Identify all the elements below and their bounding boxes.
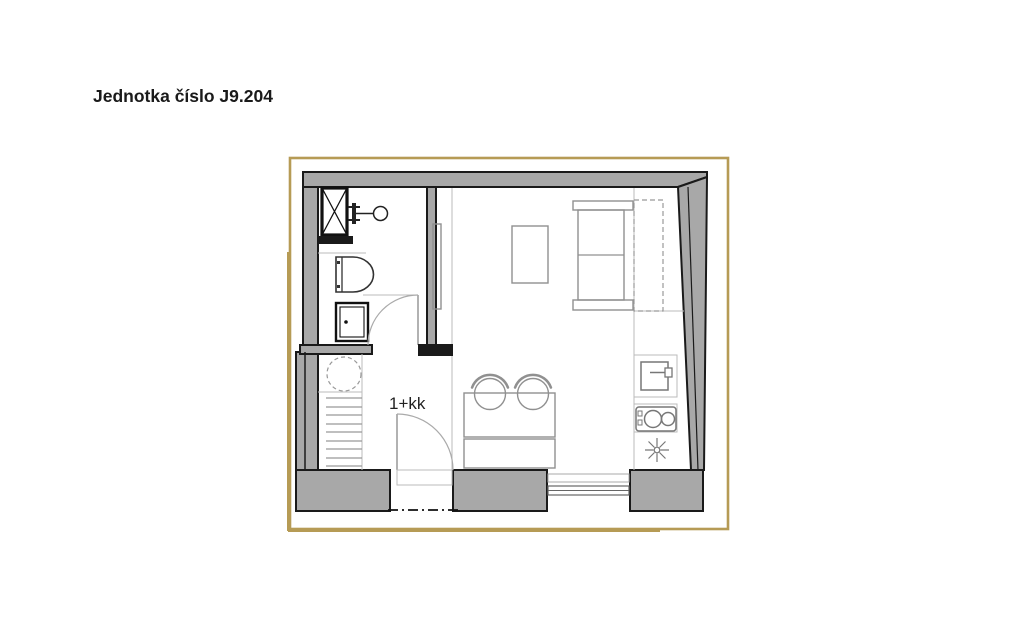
dining-chair: [475, 379, 506, 410]
partition-wall: [427, 187, 436, 345]
entry-door: [397, 414, 453, 485]
wall-top: [303, 172, 707, 187]
entry-door-swing-arc: [397, 414, 453, 470]
coffee-table: [512, 226, 548, 283]
wall-bathroom-bottom: [300, 345, 372, 354]
bed: [573, 201, 633, 310]
light-center-icon: [654, 447, 660, 453]
washbasin: [348, 203, 388, 224]
toilet: [336, 257, 373, 292]
basin-bowl-icon: [374, 207, 388, 221]
dining-chair: [518, 379, 549, 410]
bathroom-door: [368, 295, 418, 345]
toilet-hinge-bottom: [337, 285, 340, 288]
dining-table: [464, 393, 555, 437]
wall-pier-bottom-middle: [453, 470, 547, 511]
kitchen-counter: [634, 355, 677, 432]
ventilation-shaft: [317, 188, 353, 244]
washing-machine: [336, 303, 368, 341]
bathroom-door-swing-arc: [368, 295, 418, 345]
toilet-hinge-top: [337, 261, 340, 264]
guide-lines: [318, 188, 684, 470]
sink-faucet-body: [665, 368, 672, 377]
wall-pier-bottom-left: [296, 470, 390, 511]
partition-foot-wall: [418, 344, 453, 356]
ceiling-light-symbol: [645, 438, 669, 462]
washing-machine-body: [336, 303, 368, 341]
storage-shelves: [326, 398, 362, 466]
floorplan-sheet: Jednotka číslo J9.204: [0, 0, 1024, 642]
kitchen-sink: [641, 362, 668, 390]
water-heater-dashed-circle: [327, 357, 361, 391]
shaft-end-wall: [317, 236, 353, 244]
bed-headboard: [573, 201, 633, 210]
washing-machine-knob: [344, 320, 348, 324]
bed-footboard: [573, 300, 633, 310]
wall-left: [296, 187, 318, 470]
entry-threshold: [397, 470, 452, 485]
bench: [464, 439, 555, 468]
wardrobe-dashed: [634, 200, 663, 311]
dining-set: [464, 375, 555, 468]
window-sill: [548, 474, 629, 482]
window: [548, 474, 629, 495]
floor-plan: 1+kk: [0, 0, 1024, 642]
wall-pier-bottom-right: [630, 470, 703, 511]
unit-type-label: 1+kk: [389, 394, 426, 413]
